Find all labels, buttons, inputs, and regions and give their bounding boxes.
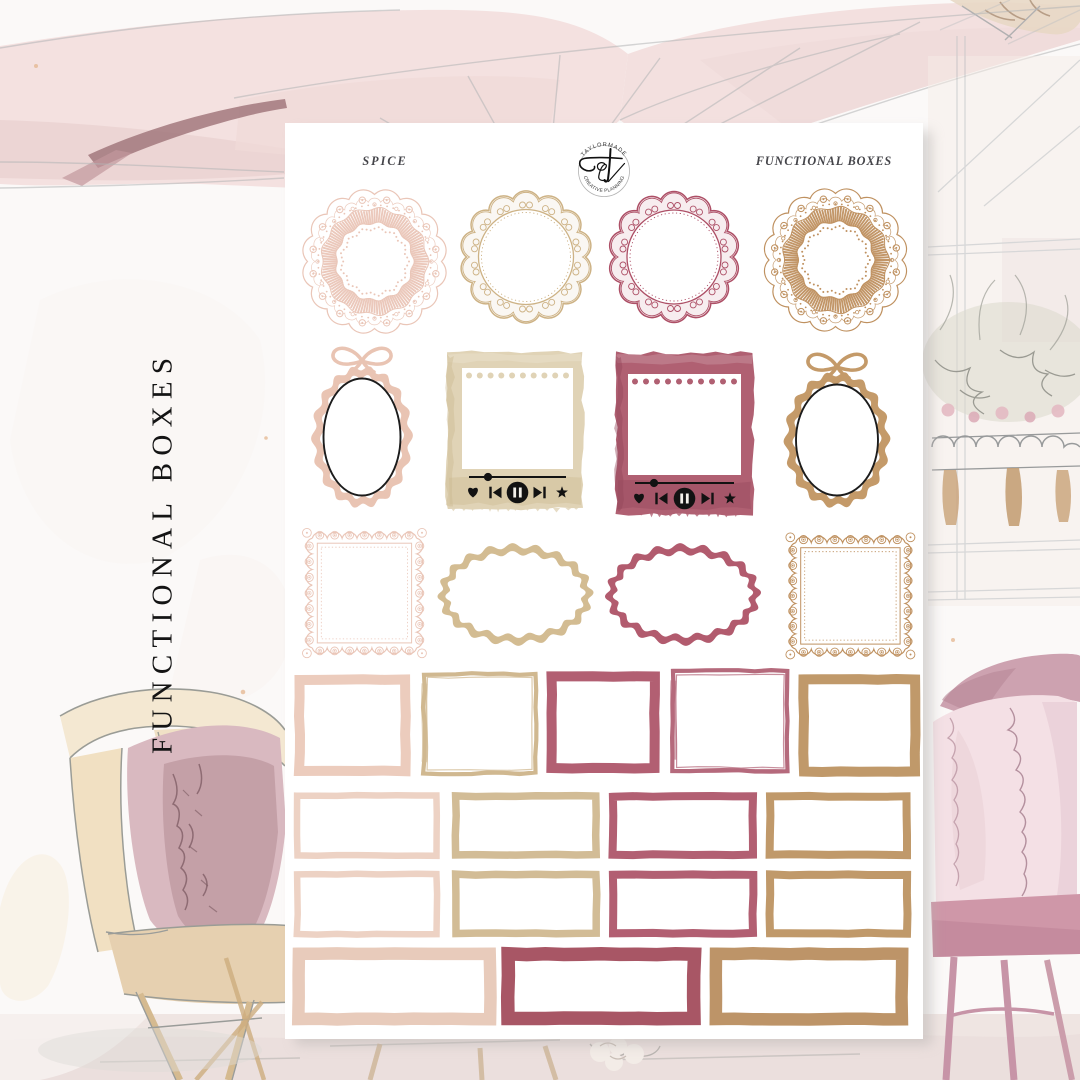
svg-text:FUNCTIONAL BOXES: FUNCTIONAL BOXES [755,154,892,168]
svg-text:FUNCTIONAL BOXES: FUNCTIONAL BOXES [147,351,179,754]
svg-text:SPICE: SPICE [362,154,407,168]
